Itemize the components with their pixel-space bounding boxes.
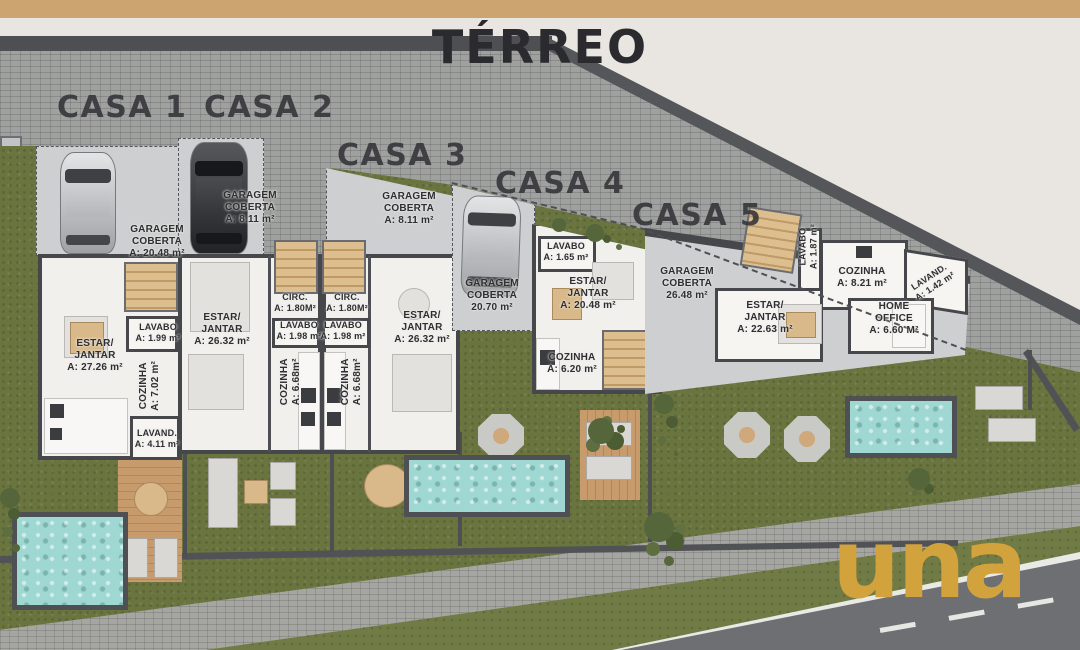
plants-casa4-entry [586, 224, 604, 242]
casa3-garagem-label: GARAGEM COBERTA A: 8.11 m² [359, 191, 459, 226]
casa4-estar-label: ESTAR/ JANTAR A: 20.48 m² [548, 276, 628, 311]
casa3-cozinha-label: COZINHA A: 6.68m² [340, 342, 364, 422]
casa5-stove [856, 246, 872, 258]
casa2-yard-sofa [208, 458, 238, 528]
casa1-stairs [124, 262, 178, 312]
casa2-yard-chair-2 [270, 498, 296, 526]
tree-verge-right [908, 468, 930, 490]
casa2-stairs [274, 240, 318, 294]
casa5-umbrella-2 [784, 416, 830, 462]
casa2-sink [301, 412, 315, 426]
casa1-pool [12, 512, 128, 610]
casa2-yard-table [244, 480, 268, 504]
casa2-dining-table [188, 354, 244, 410]
tree-bottom-center [644, 512, 674, 542]
una-logo: una [832, 516, 1062, 616]
casa4-label: CASA 4 [495, 166, 625, 201]
casa3-label: CASA 3 [337, 138, 467, 173]
casa1-label: CASA 1 [57, 90, 187, 125]
casa5-umbrella-1 [724, 412, 770, 458]
casa3-lavabo-label: LAVABO A: 1.98 m² [310, 320, 376, 341]
casa5-garagem-label: GARAGEM COBERTA 26.48 m² [637, 266, 737, 301]
casa5-cozinha-label: COZINHA A: 8.21 m² [822, 266, 902, 290]
casa3-circ-label: CIRC. A: 1.80M² [317, 292, 377, 313]
casa1-cozinha-label: COZINHA A: 7.02 m² [138, 346, 162, 426]
yard-wall-5 [1028, 350, 1032, 410]
yard-wall-2 [330, 448, 334, 552]
casa4-lounger-2 [586, 456, 632, 480]
casa2-cozinha-label: COZINHA A: 6.68m² [279, 342, 303, 422]
casa2-yard-chair-1 [270, 462, 296, 490]
casa4-pool [404, 455, 570, 517]
bushes-casa5-left [654, 394, 674, 414]
site-plan-canvas: TÉRREO [0, 0, 1080, 650]
casa1-stove [50, 404, 64, 418]
top-accent-bar [0, 0, 1080, 18]
casa2-circ-label: CIRC. A: 1.80M² [265, 292, 325, 313]
plants-casa4-corner [552, 218, 566, 232]
casa2-estar-label: ESTAR/ JANTAR A: 26.32 m² [182, 312, 262, 347]
casa4-cozinha-label: COZINHA A: 6.20 m² [532, 352, 612, 376]
casa1-lounger-2 [154, 538, 178, 578]
casa3-stairs [322, 240, 366, 294]
casa5-home-office-label: HOME OFFICE A: 6.60 M² [854, 301, 934, 336]
casa4-lavabo-label: LAVABO A: 1.65 m² [526, 241, 606, 262]
casa2-label: CASA 2 [204, 90, 334, 125]
casa2-stove [301, 388, 316, 403]
casa1-deck-table [134, 482, 168, 516]
casa5-lounger-2 [988, 418, 1036, 442]
casa4-garagem-label: GARAGEM COBERTA 20.70 m² [442, 278, 542, 313]
casa3-estar-label: ESTAR/ JANTAR A: 26.32 m² [382, 310, 462, 345]
casa1-estar-label: ESTAR/ JANTAR A: 27.26 m² [55, 338, 135, 373]
casa2-garagem-label: GARAGEM COBERTA A: 8.11 m² [200, 190, 300, 225]
casa5-lounger-1 [975, 386, 1023, 410]
page-title: TÉRREO [340, 20, 740, 74]
casa3-dining-table [392, 354, 452, 412]
tree-between-casa4-5 [588, 418, 614, 444]
casa1-sink [50, 428, 62, 440]
casa5-estar-label: ESTAR/ JANTAR A: 22.63 m² [725, 300, 805, 335]
bushes-left-edge [0, 488, 20, 508]
casa2-partition [268, 256, 271, 452]
casa3-partition [368, 256, 371, 452]
casa1-garagem-label: GARAGEM COBERTA A: 20.48 m² [107, 224, 207, 259]
casa5-lavabo-label: LAVABO A: 1.87 m² [797, 217, 818, 277]
casa4-umbrella [478, 414, 524, 458]
casa5-label: CASA 5 [632, 198, 762, 233]
yard-wall-1 [183, 452, 187, 558]
casa3-sink [327, 412, 341, 426]
casa5-pool [845, 396, 957, 458]
casa1-lavand-label: LAVAND. A: 4.11 m² [117, 428, 197, 449]
